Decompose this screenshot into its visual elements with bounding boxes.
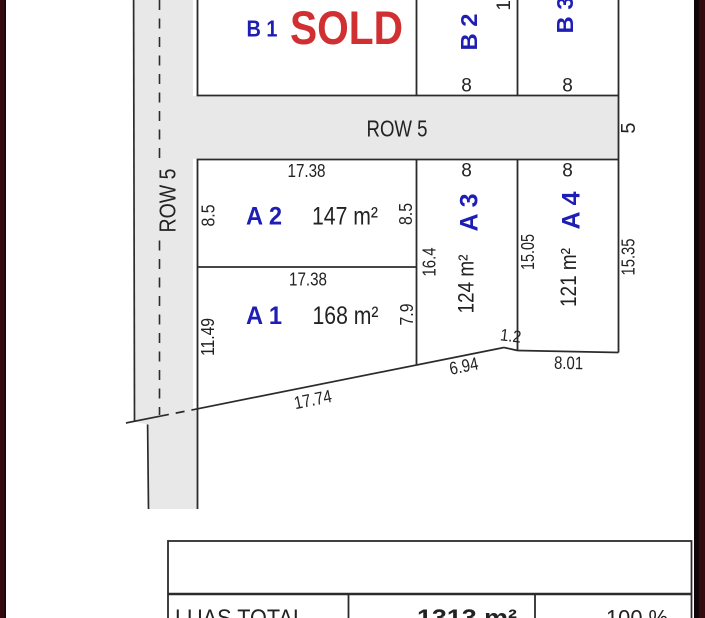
- svg-text:A 1: A 1: [246, 302, 282, 330]
- svg-text:17.38: 17.38: [288, 161, 326, 181]
- svg-text:B 1: B 1: [247, 16, 278, 42]
- svg-text:15.35: 15.35: [618, 239, 638, 276]
- svg-text:A 4: A 4: [558, 191, 586, 229]
- svg-text:A 2: A 2: [246, 203, 282, 231]
- svg-text:147 m²: 147 m²: [312, 203, 378, 231]
- svg-text:LUAS TOTAL: LUAS TOTAL: [175, 605, 305, 618]
- svg-text:8.01: 8.01: [554, 353, 583, 374]
- svg-text:B 3: B 3: [552, 0, 578, 34]
- svg-text:ROW 5: ROW 5: [367, 116, 428, 142]
- svg-text:SOLD: SOLD: [290, 1, 403, 54]
- svg-text:1313 m²: 1313 m²: [417, 605, 517, 618]
- svg-text:16.4: 16.4: [419, 248, 439, 277]
- svg-text:7.9: 7.9: [397, 304, 417, 326]
- svg-text:1.2: 1.2: [499, 325, 522, 346]
- svg-text:A 3: A 3: [456, 194, 484, 232]
- svg-text:ROW 5: ROW 5: [154, 169, 180, 233]
- svg-text:124 m²: 124 m²: [453, 255, 478, 314]
- svg-text:8: 8: [461, 161, 472, 182]
- svg-text:121 m²: 121 m²: [556, 248, 581, 307]
- svg-text:B 2: B 2: [456, 14, 482, 51]
- svg-text:8: 8: [562, 161, 573, 182]
- svg-text:11.49: 11.49: [198, 318, 218, 356]
- svg-text:17.38: 17.38: [289, 270, 327, 290]
- svg-text:8.5: 8.5: [396, 203, 416, 225]
- svg-text:15.05: 15.05: [518, 234, 538, 270]
- svg-text:1: 1: [494, 0, 515, 11]
- svg-text:5: 5: [618, 122, 640, 133]
- svg-text:8.5: 8.5: [198, 205, 218, 227]
- svg-text:8: 8: [461, 76, 472, 97]
- svg-text:100 %: 100 %: [606, 605, 668, 618]
- svg-text:168 m²: 168 m²: [313, 302, 379, 330]
- svg-text:8: 8: [562, 76, 573, 97]
